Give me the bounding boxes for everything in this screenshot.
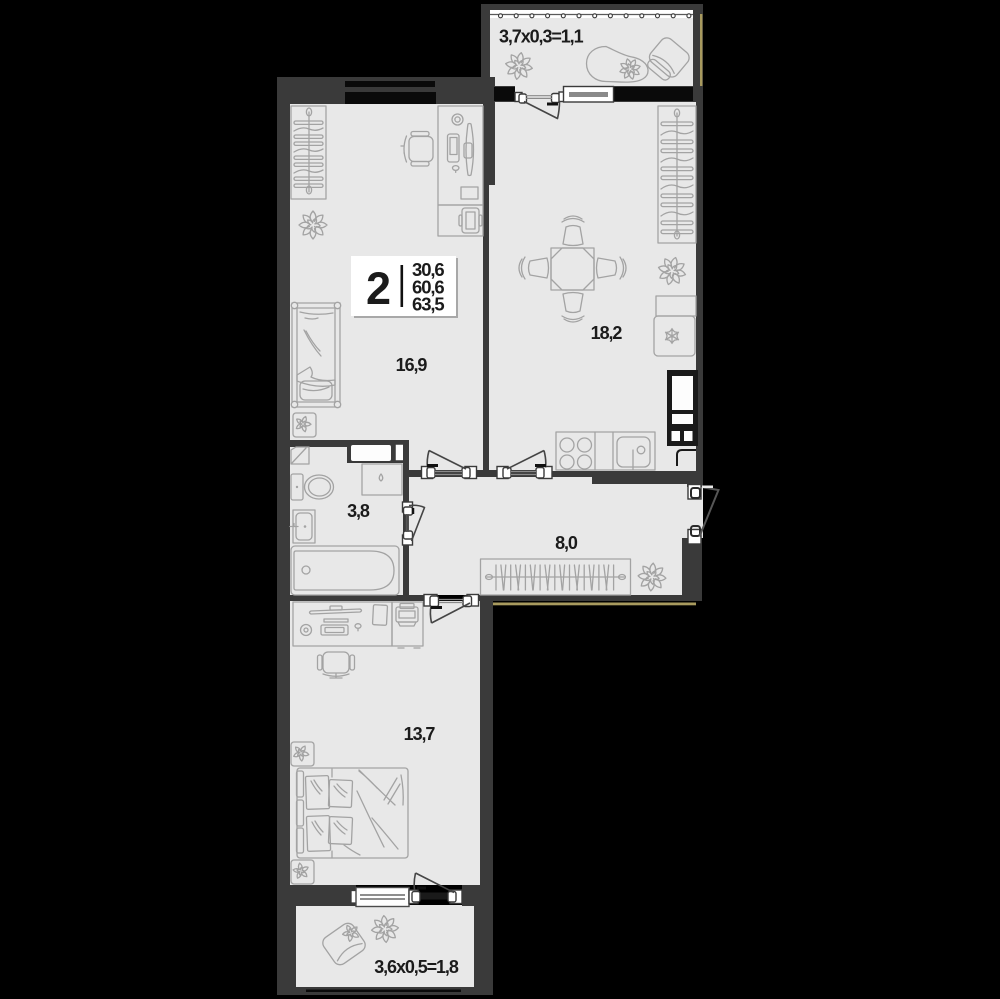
svg-text:3,6x0,5=1,8: 3,6x0,5=1,8 — [374, 957, 459, 977]
svg-text:18,2: 18,2 — [591, 323, 623, 343]
svg-text:8,0: 8,0 — [555, 533, 578, 553]
svg-text:3,7x0,3=1,1: 3,7x0,3=1,1 — [499, 27, 584, 47]
svg-text:13,7: 13,7 — [404, 724, 436, 744]
svg-text:3,8: 3,8 — [347, 501, 370, 521]
svg-text:2: 2 — [366, 263, 390, 314]
svg-text:16,9: 16,9 — [396, 355, 428, 375]
svg-text:63,5: 63,5 — [412, 294, 444, 315]
